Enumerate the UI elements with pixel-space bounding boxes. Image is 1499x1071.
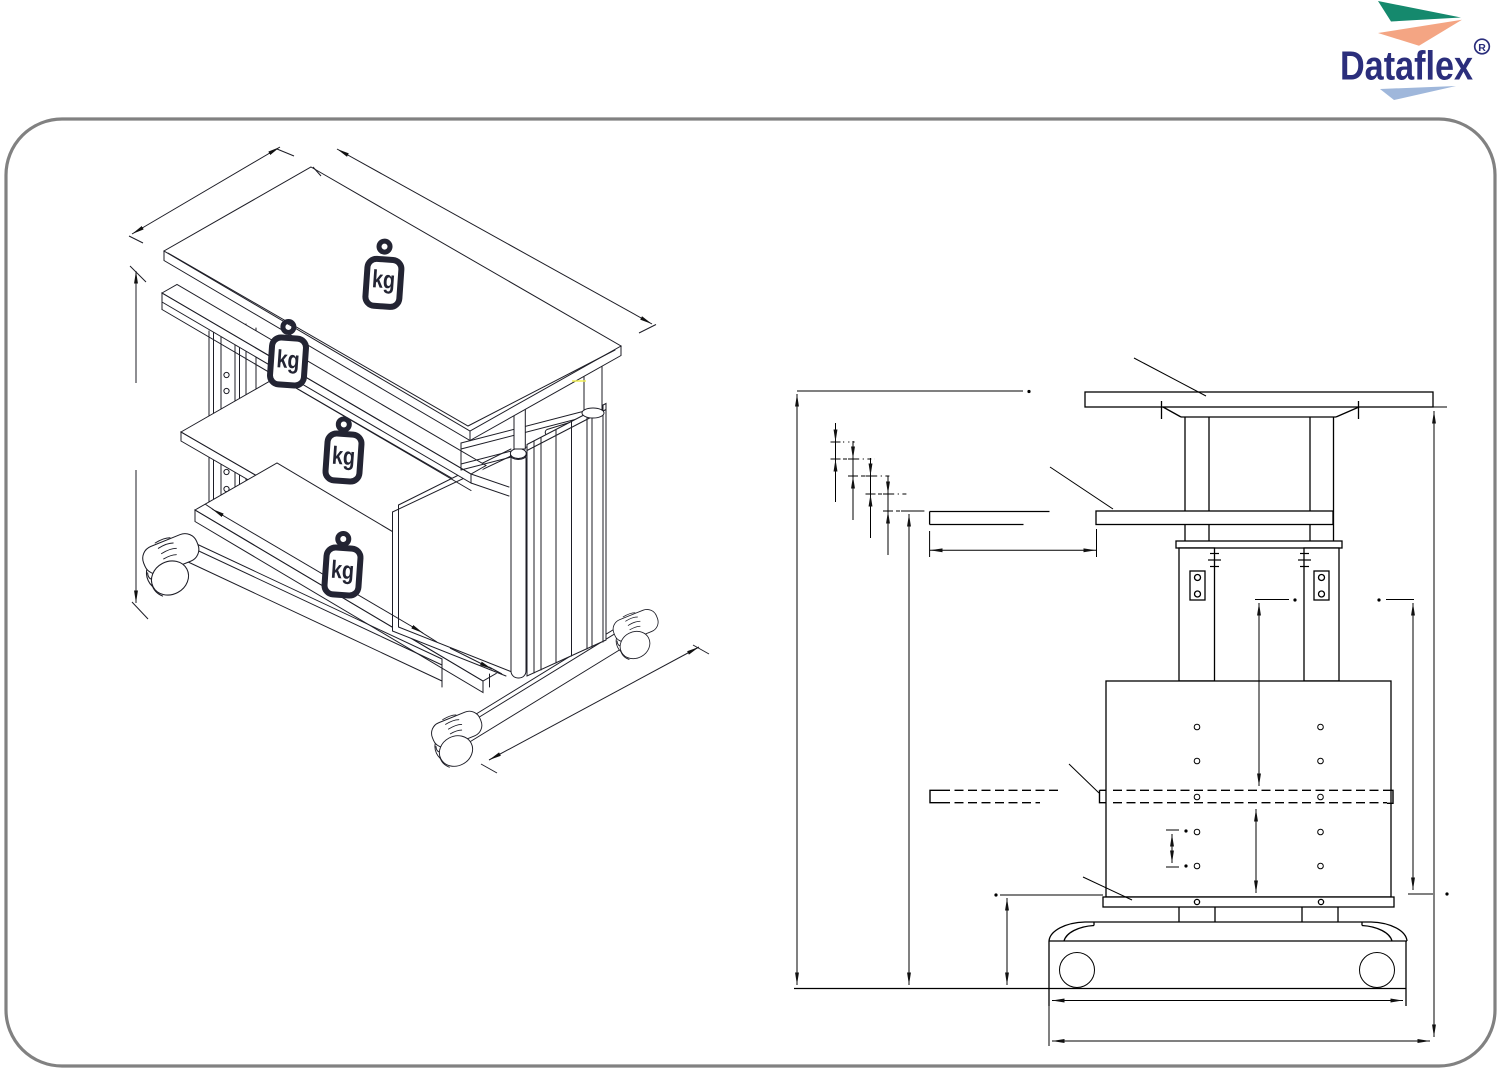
svg-text:kg: kg [330, 556, 355, 586]
svg-text:kg: kg [331, 442, 356, 472]
svg-text:Dataflex: Dataflex [1340, 43, 1473, 89]
svg-text:R: R [1478, 42, 1486, 54]
svg-text:kg: kg [276, 345, 301, 375]
svg-text:kg: kg [371, 265, 396, 295]
